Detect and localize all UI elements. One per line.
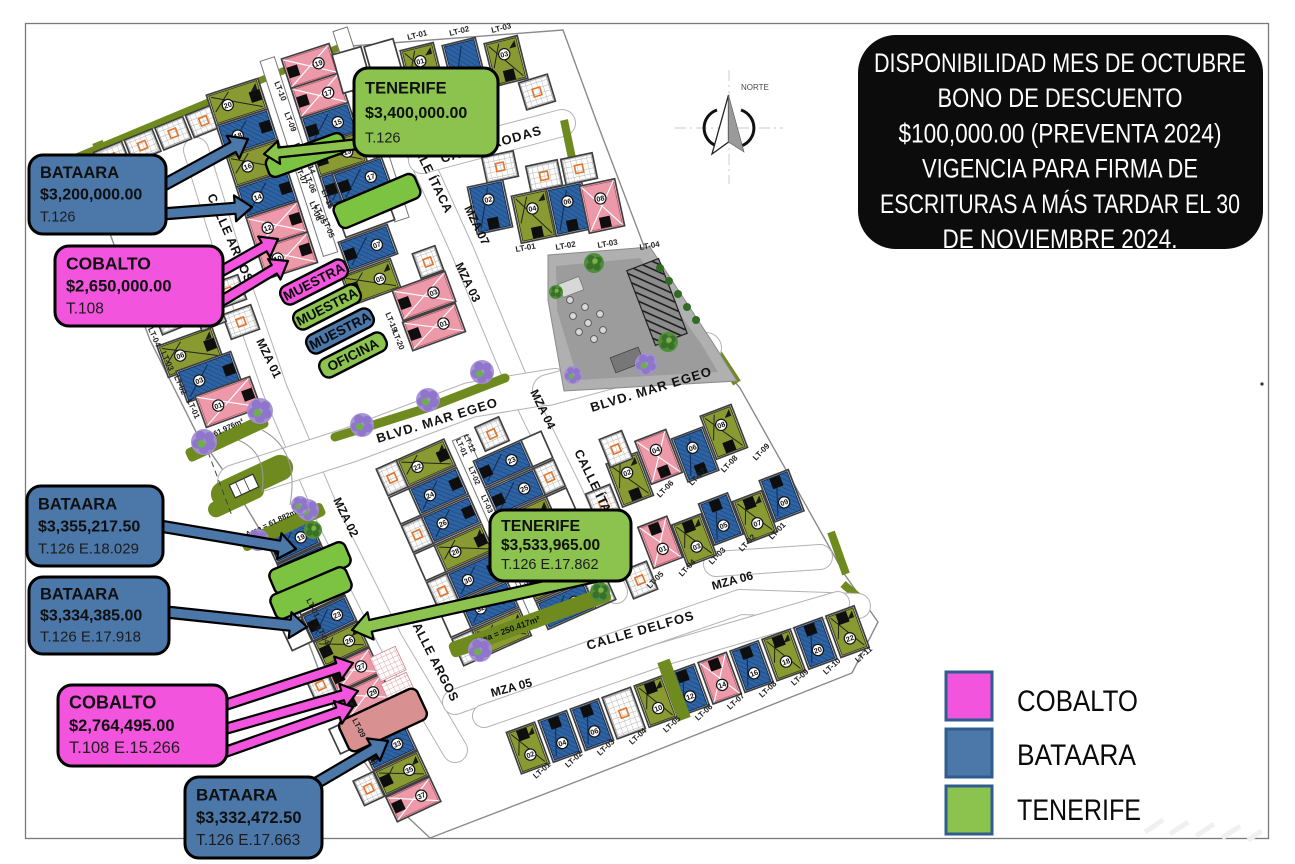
svg-text:ESCRITURAS A MÁS TARDAR EL 30: ESCRITURAS A MÁS TARDAR EL 30 [880, 189, 1240, 219]
svg-text:T.126 E.17.663: T.126 E.17.663 [196, 832, 300, 849]
svg-text:$3,334,385.00: $3,334,385.00 [40, 608, 142, 625]
svg-text:T.108: T.108 [66, 300, 104, 317]
svg-text:COBALTO: COBALTO [69, 693, 156, 713]
svg-text:$3,332,472.50: $3,332,472.50 [196, 809, 302, 827]
svg-text:$3,355,217.50: $3,355,217.50 [38, 518, 140, 535]
svg-text:$3,400,000.00: $3,400,000.00 [365, 105, 467, 122]
svg-text:$100,000.00 (PREVENTA 2024): $100,000.00 (PREVENTA 2024) [899, 118, 1222, 148]
svg-text:NORTE: NORTE [741, 83, 769, 92]
svg-text:DISPONIBILIDAD MES DE OCTUBRE: DISPONIBILIDAD MES DE OCTUBRE [874, 48, 1246, 78]
svg-text:BATAARA: BATAARA [40, 586, 119, 604]
svg-text:$2,764,495.00: $2,764,495.00 [69, 717, 175, 735]
svg-text:T.108 E.15.266: T.108 E.15.266 [69, 739, 180, 757]
svg-text:COBALTO: COBALTO [66, 253, 151, 273]
svg-text:$3,200,000.00: $3,200,000.00 [40, 187, 142, 204]
svg-text:BATAARA: BATAARA [38, 495, 117, 513]
svg-text:T.126 E.17.862: T.126 E.17.862 [501, 557, 599, 573]
svg-text:BONO DE DESCUENTO: BONO DE DESCUENTO [938, 83, 1183, 113]
svg-text:TENERIFE: TENERIFE [365, 79, 447, 97]
svg-text:TENERIFE: TENERIFE [501, 518, 580, 535]
svg-text:BATAARA: BATAARA [40, 164, 119, 182]
svg-text:T.126 E.18.029: T.126 E.18.029 [38, 540, 139, 557]
svg-text:$3,533,965.00: $3,533,965.00 [501, 537, 600, 554]
svg-text:VIGENCIA PARA FIRMA DE: VIGENCIA PARA FIRMA DE [922, 154, 1198, 184]
svg-text:T.126: T.126 [40, 209, 75, 225]
svg-text:$2,650,000.00: $2,650,000.00 [66, 277, 172, 295]
svg-text:COBALTO: COBALTO [1017, 685, 1138, 718]
svg-text:BATAARA: BATAARA [196, 786, 278, 805]
svg-text:DE NOVIEMBRE 2024.: DE NOVIEMBRE 2024. [943, 224, 1178, 254]
svg-text:T.126: T.126 [365, 131, 400, 147]
svg-text:T.126 E.17.918: T.126 E.17.918 [40, 629, 141, 646]
svg-text:BATAARA: BATAARA [1017, 739, 1136, 772]
svg-text:TENERIFE: TENERIFE [1017, 794, 1141, 827]
